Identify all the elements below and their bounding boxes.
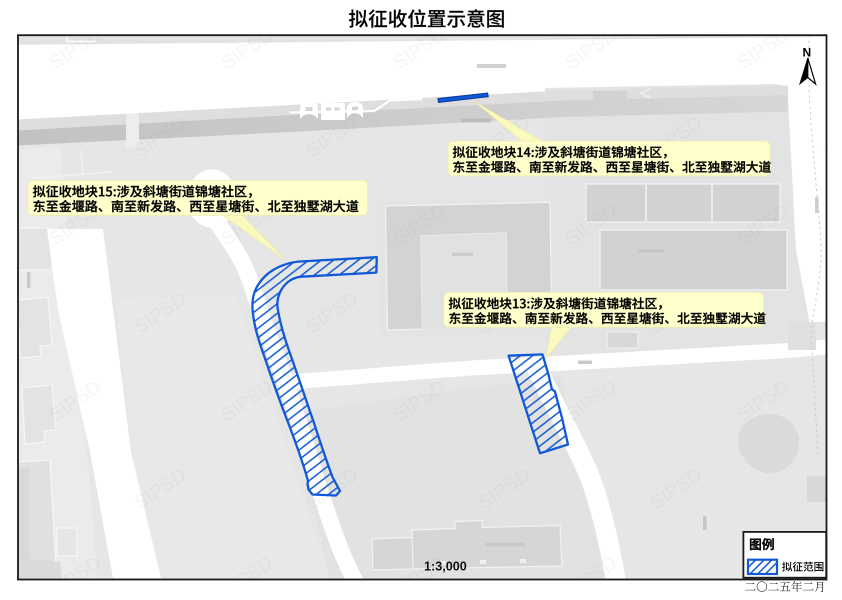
svg-text:N: N — [803, 46, 812, 60]
svg-text:1:3,000: 1:3,000 — [424, 560, 467, 574]
